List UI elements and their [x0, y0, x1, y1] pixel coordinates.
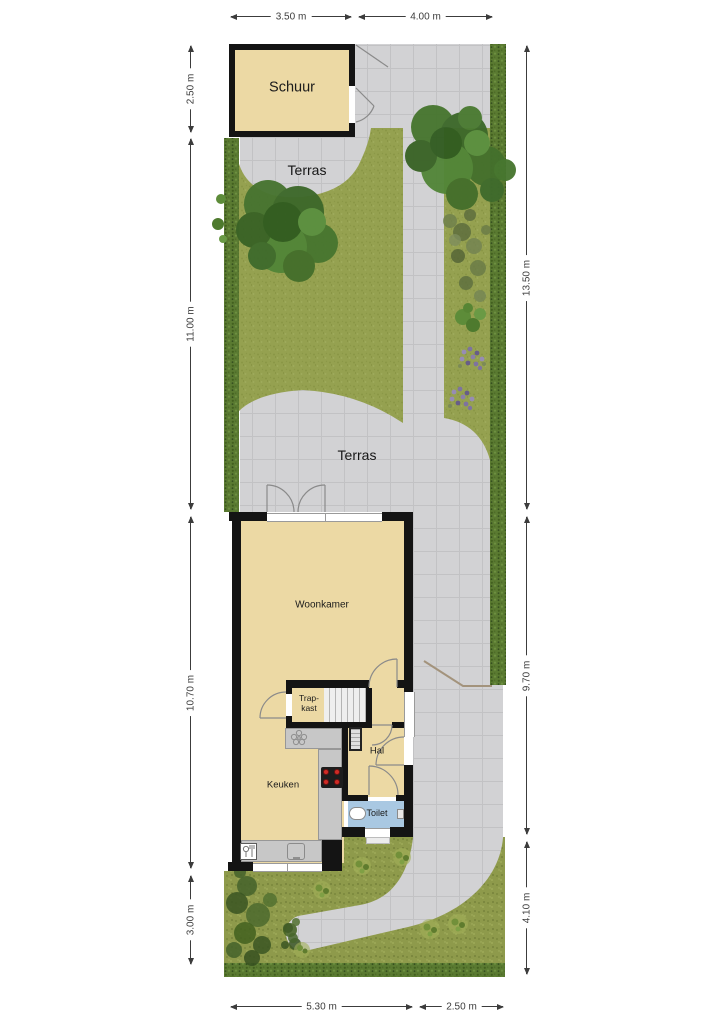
area-label-terras-top: Terras [288, 162, 327, 178]
room-label-keuken: Keuken [267, 781, 299, 792]
trapkast-line1: Trap- [299, 693, 319, 703]
dimension-left-1: 2.50 m [184, 45, 198, 133]
dimension-right-1: 13.50 m [520, 45, 534, 510]
stair-closet-door [260, 692, 286, 718]
floorplan-canvas: Schuur Terras Terras Woonkamer Trap- kas… [0, 0, 724, 1024]
door-swing-overlay [0, 0, 724, 1024]
livingroom-door [369, 659, 397, 687]
dimension-bottom-1: 5.30 m [230, 1000, 413, 1014]
room-label-schuur: Schuur [269, 80, 315, 97]
terrace-french-doors [267, 485, 325, 512]
schuur-doors [356, 45, 388, 122]
counter-plant-icon [291, 730, 306, 744]
dimension-top-1: 3.50 m [230, 10, 352, 24]
dimension-left-4: 3.00 m [184, 875, 198, 965]
room-label-woonkamer: Woonkamer [295, 599, 349, 611]
room-label-trapkast: Trap- kast [299, 694, 319, 714]
dimension-right-2: 9.70 m [520, 516, 534, 835]
trapkast-line2: kast [301, 703, 317, 713]
dimension-left-2: 11.00 m [184, 138, 198, 510]
terrace-edge-line [424, 661, 492, 686]
toilet-door [369, 766, 398, 795]
dimension-left-3: 10.70 m [184, 516, 198, 869]
dimension-top-2: 4.00 m [358, 10, 493, 24]
dimension-bottom-2: 2.50 m [419, 1000, 504, 1014]
dishwasher-icon [243, 845, 254, 857]
room-label-hal: Hal [370, 747, 384, 758]
room-label-toilet: Toilet [366, 808, 387, 818]
dimension-right-3: 4.10 m [520, 841, 534, 975]
area-label-terras-mid: Terras [338, 447, 377, 463]
